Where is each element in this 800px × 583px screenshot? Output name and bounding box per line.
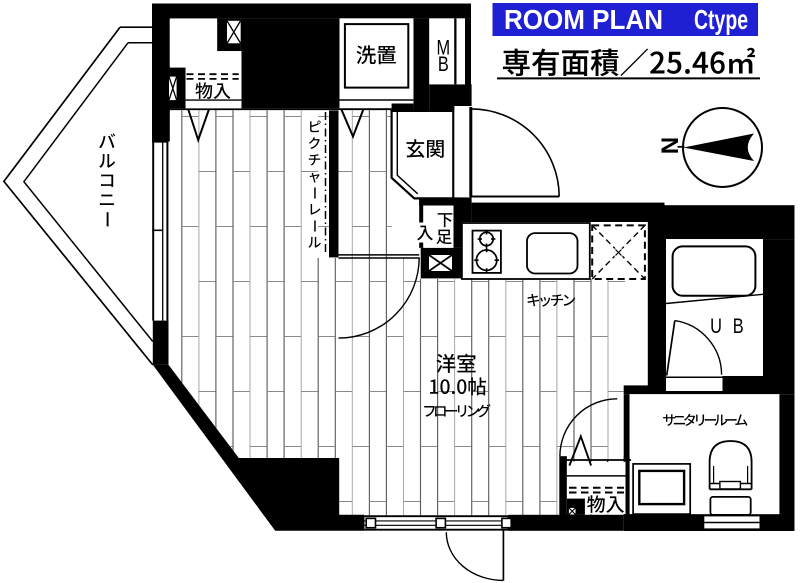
svg-text:Ctype: Ctype bbox=[694, 4, 748, 35]
svg-text:N: N bbox=[656, 137, 683, 154]
svg-text:U B: U B bbox=[710, 314, 747, 337]
svg-text:ROOM PLAN: ROOM PLAN bbox=[504, 4, 663, 35]
svg-text:B: B bbox=[438, 52, 449, 75]
